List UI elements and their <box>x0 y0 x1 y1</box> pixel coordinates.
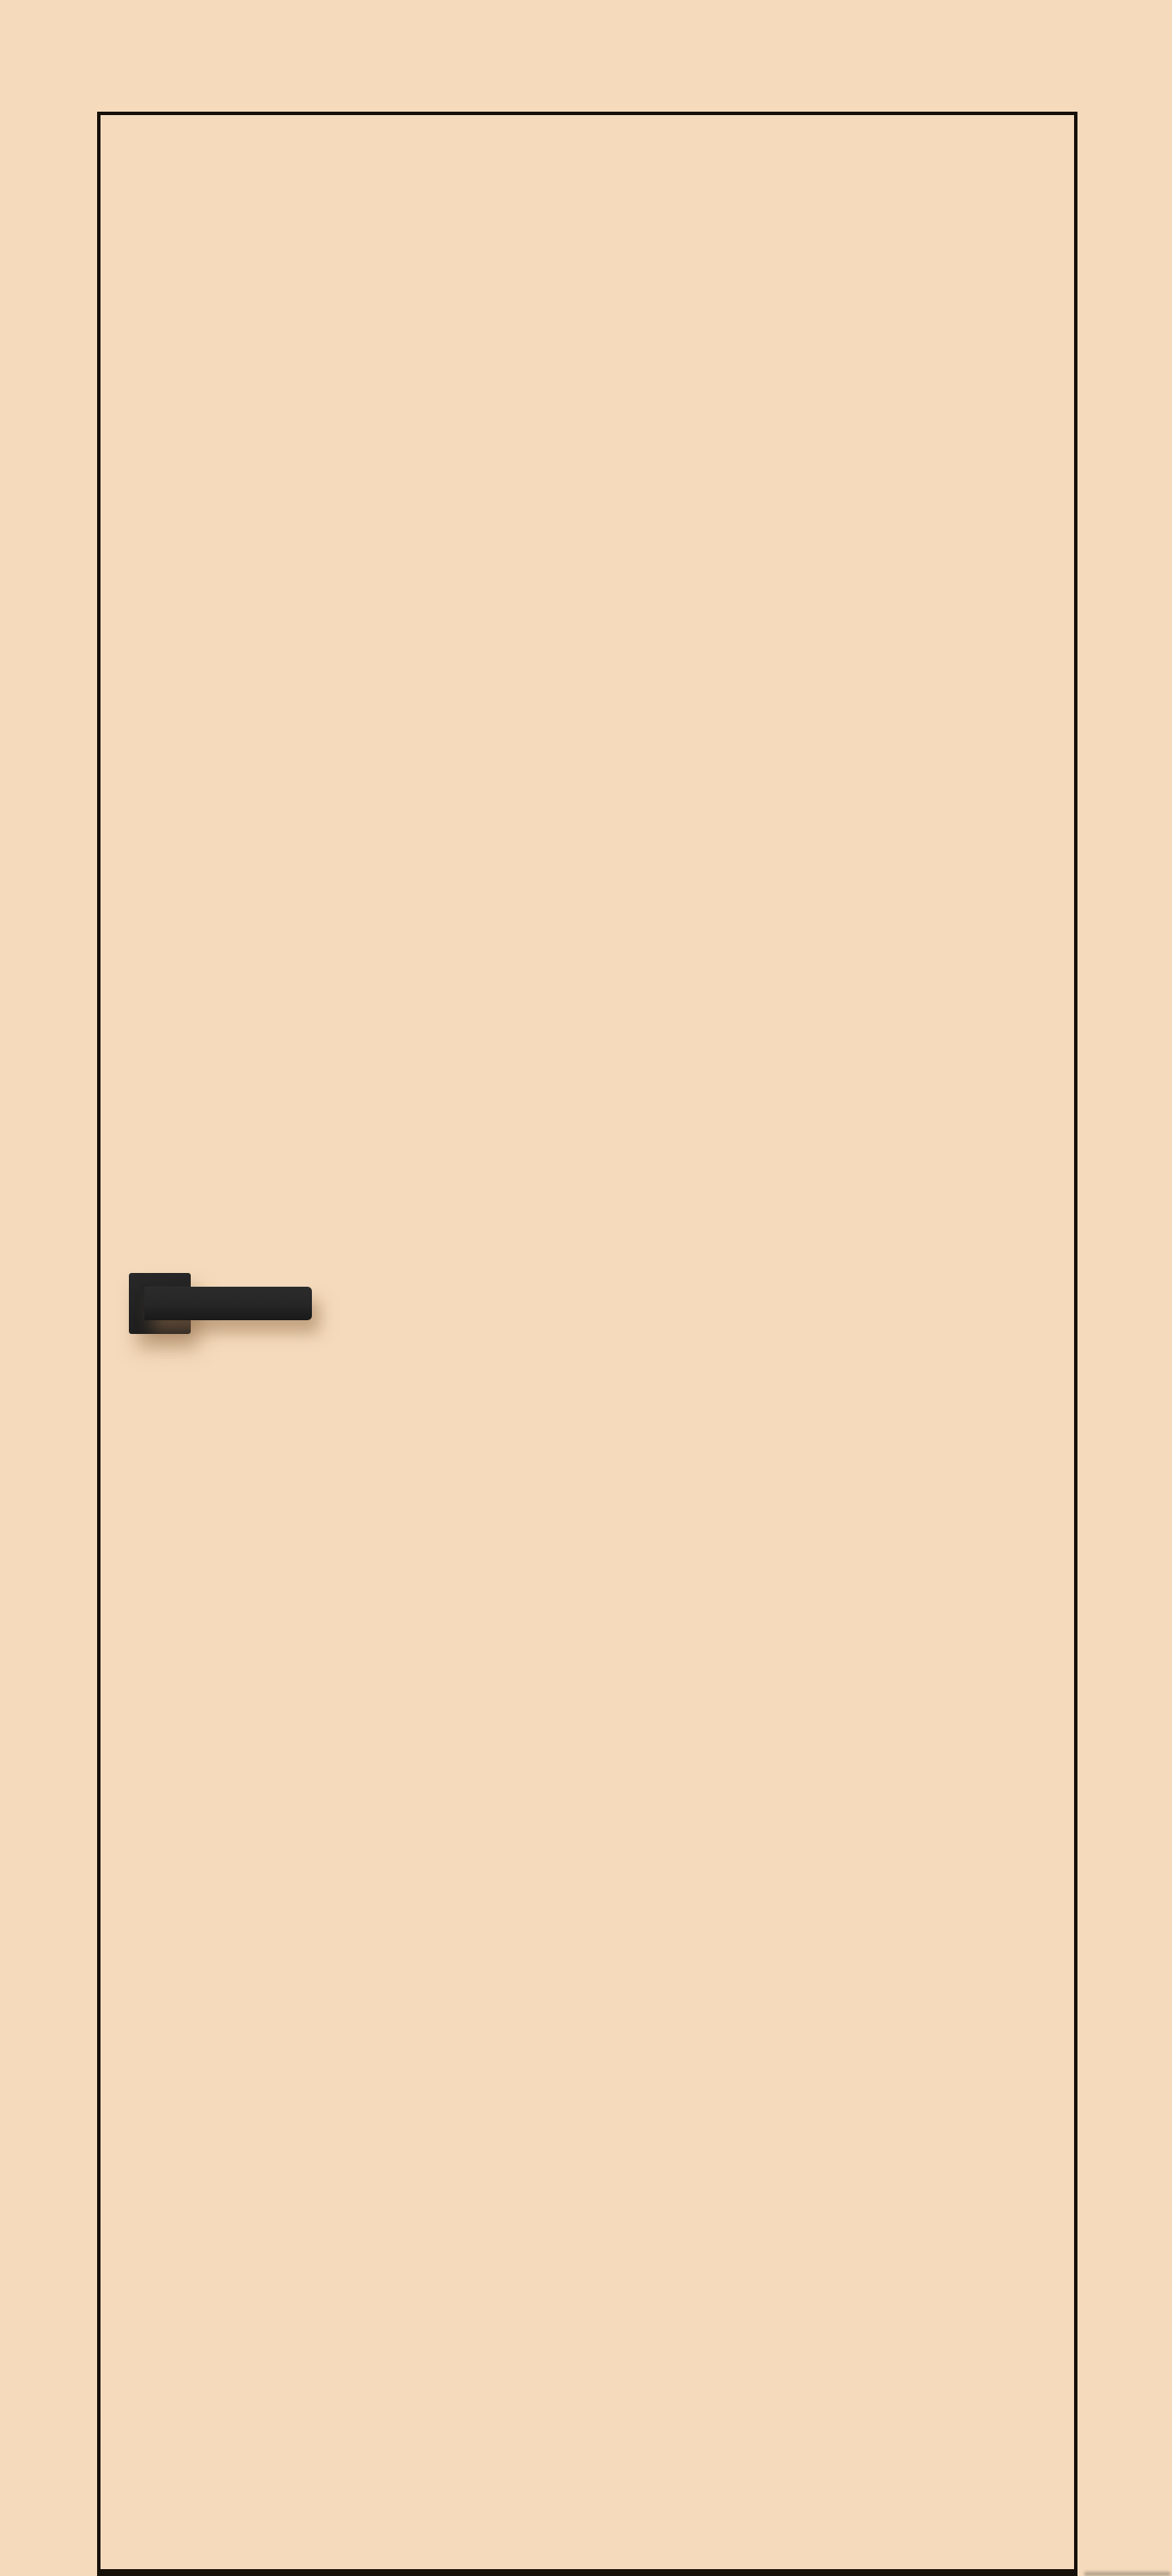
handle-lever <box>144 1287 312 1320</box>
door-handle <box>129 1273 314 1337</box>
floor-shadow <box>1084 2572 1170 2576</box>
door-leaf <box>97 112 1077 2576</box>
